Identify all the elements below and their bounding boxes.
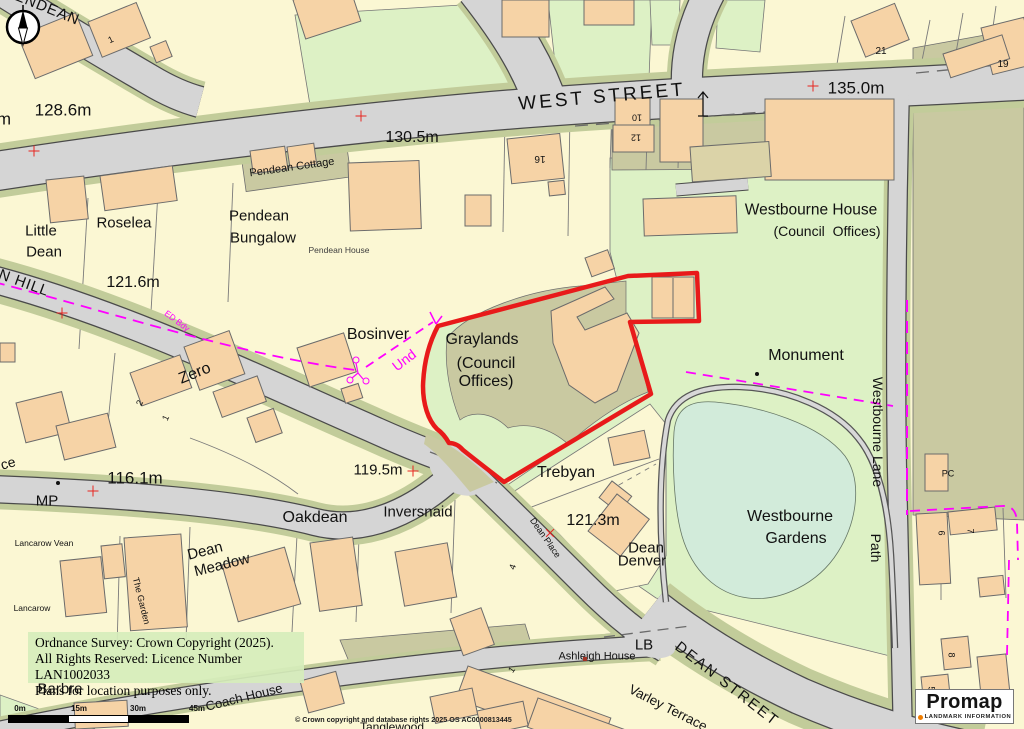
os-map-graphic <box>0 0 1024 729</box>
scale-bar-strip <box>8 715 189 723</box>
copyright-line-3: Plans for location purposes only. <box>35 683 304 699</box>
os-credit: © Crown copyright and database rights 20… <box>295 715 512 724</box>
scale-seg-2 <box>69 716 128 722</box>
map-canvas[interactable]: PENDEANWEST STREET128.6m130.5m135.0mPend… <box>0 0 1024 729</box>
scale-tick-0: 0m <box>14 704 26 713</box>
scale-tick-45: 45m <box>189 704 205 713</box>
scale-bar: 0m 15m 30m 45m <box>8 704 208 726</box>
scale-tick-30: 30m <box>130 704 146 713</box>
promap-wordmark: Promap <box>916 692 1013 712</box>
scale-tick-15: 15m <box>71 704 87 713</box>
copyright-box: Ordnance Survey: Crown Copyright (2025).… <box>28 632 304 683</box>
scale-seg-1 <box>9 716 69 722</box>
promap-tagline-text: LANDMARK INFORMATION <box>925 714 1012 720</box>
copyright-line-1: Ordnance Survey: Crown Copyright (2025). <box>35 635 304 651</box>
promap-orange-dot-icon <box>918 715 923 720</box>
scale-seg-3 <box>128 716 188 722</box>
promap-logo: Promap LANDMARK INFORMATION <box>915 689 1014 724</box>
copyright-line-2: All Rights Reserved: Licence Number LAN1… <box>35 651 304 683</box>
